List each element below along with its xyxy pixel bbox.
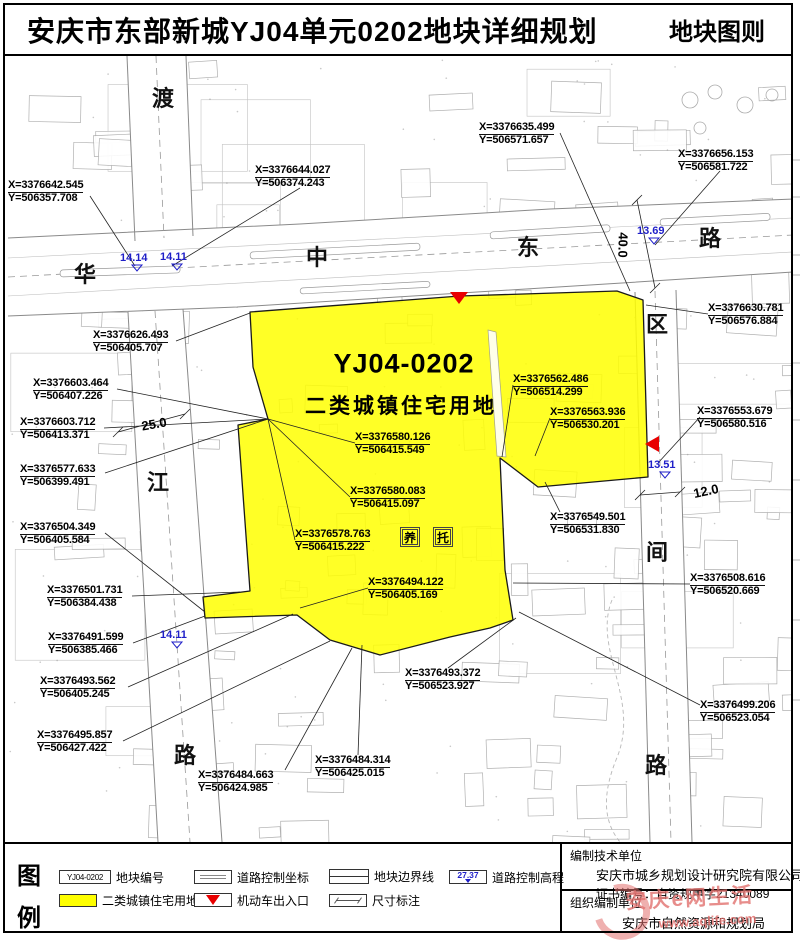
- page-title: 安庆市东部新城YJ04单元0202地块详细规划: [27, 10, 598, 50]
- tech-unit-name: 安庆市城乡规划设计研究院有限公司: [596, 865, 791, 884]
- legend-item: 道路控制坐标: [194, 869, 309, 885]
- legend-item-label: 道路控制坐标: [237, 869, 309, 886]
- tech-unit-label: 编制技术单位: [570, 847, 791, 864]
- legend-panel: 编制技术单位 安庆市城乡规划设计研究院有限公司 证书编号：自资规甲字213400…: [5, 842, 791, 931]
- boundary-line-swatch: [329, 869, 369, 884]
- entrance-swatch: [194, 893, 232, 907]
- credits-block: 编制技术单位 安庆市城乡规划设计研究院有限公司 证书编号：自资规甲字213400…: [560, 844, 791, 931]
- elevation-box-swatch: 27.37: [449, 870, 487, 884]
- title-bar: 安庆市东部新城YJ04单元0202地块详细规划 地块图则: [5, 5, 791, 56]
- legend-item-label: 地块编号: [116, 869, 164, 886]
- legend-item-label: 地块边界线: [374, 868, 434, 885]
- tech-unit-row: 编制技术单位 安庆市城乡规划设计研究院有限公司 证书编号：自资规甲字213400…: [562, 844, 791, 891]
- legend-item: 机动车出入口: [194, 892, 309, 908]
- code-box-swatch: YJ04-0202: [59, 870, 111, 884]
- legend-item: YJ04-0202地块编号: [59, 869, 164, 885]
- legend-item: 二类城镇住宅用地: [59, 892, 198, 908]
- legend-item: 27.37道路控制高程: [449, 869, 564, 885]
- plan-sheet: YJ04-0202 二类城镇住宅用地 X=3376642.545Y=506357…: [0, 0, 800, 943]
- legend-title-char: 图: [17, 856, 41, 891]
- legend-item-label: 机动车出入口: [237, 892, 309, 909]
- coord-box-swatch: [194, 870, 232, 884]
- legend-item-label: 二类城镇住宅用地: [102, 892, 198, 909]
- legend-item-label: 道路控制高程: [492, 869, 564, 886]
- map-canvas: [0, 0, 800, 943]
- legend-item: 尺寸标注: [329, 892, 420, 908]
- dimension-swatch: [329, 894, 367, 907]
- org-unit-name: 安庆市自然资源和规划局: [622, 913, 791, 932]
- sheet-type-label: 地块图则: [669, 12, 765, 47]
- landuse-fill-swatch: [59, 894, 97, 907]
- legend-item: 地块边界线: [329, 868, 434, 884]
- legend-title-char: 例: [17, 898, 41, 933]
- legend-item-label: 尺寸标注: [372, 892, 420, 909]
